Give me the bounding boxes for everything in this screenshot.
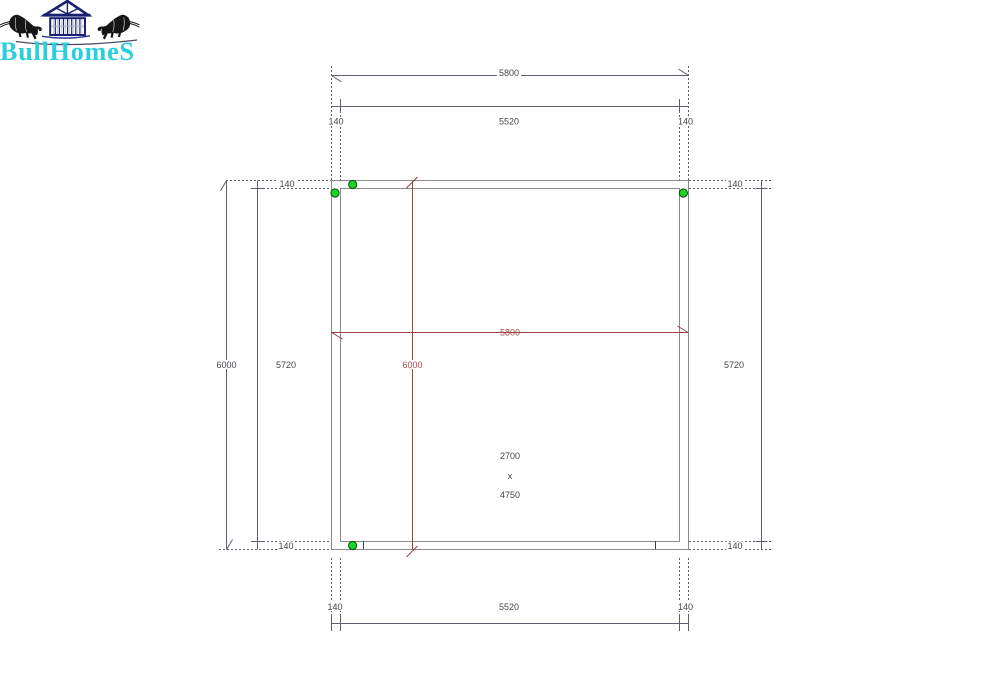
svg-text:2700: 2700 [500,451,520,461]
svg-text:140: 140 [727,541,742,551]
svg-text:x: x [508,471,513,481]
svg-text:140: 140 [727,179,742,189]
svg-text:140: 140 [327,602,342,612]
svg-text:6000: 6000 [402,360,422,370]
svg-text:BullHomeS: BullHomeS [0,37,134,66]
svg-text:6000: 6000 [216,360,236,370]
svg-text:140: 140 [328,117,343,127]
svg-text:140: 140 [279,179,294,189]
svg-text:5720: 5720 [276,360,296,370]
svg-text:5520: 5520 [499,602,519,612]
svg-text:4750: 4750 [500,490,520,500]
svg-text:5520: 5520 [499,117,519,127]
svg-text:140: 140 [678,117,693,127]
svg-text:140: 140 [278,541,293,551]
svg-text:5800: 5800 [499,68,519,78]
svg-text:5720: 5720 [724,360,744,370]
svg-text:140: 140 [678,602,693,612]
svg-text:5800: 5800 [500,328,520,338]
